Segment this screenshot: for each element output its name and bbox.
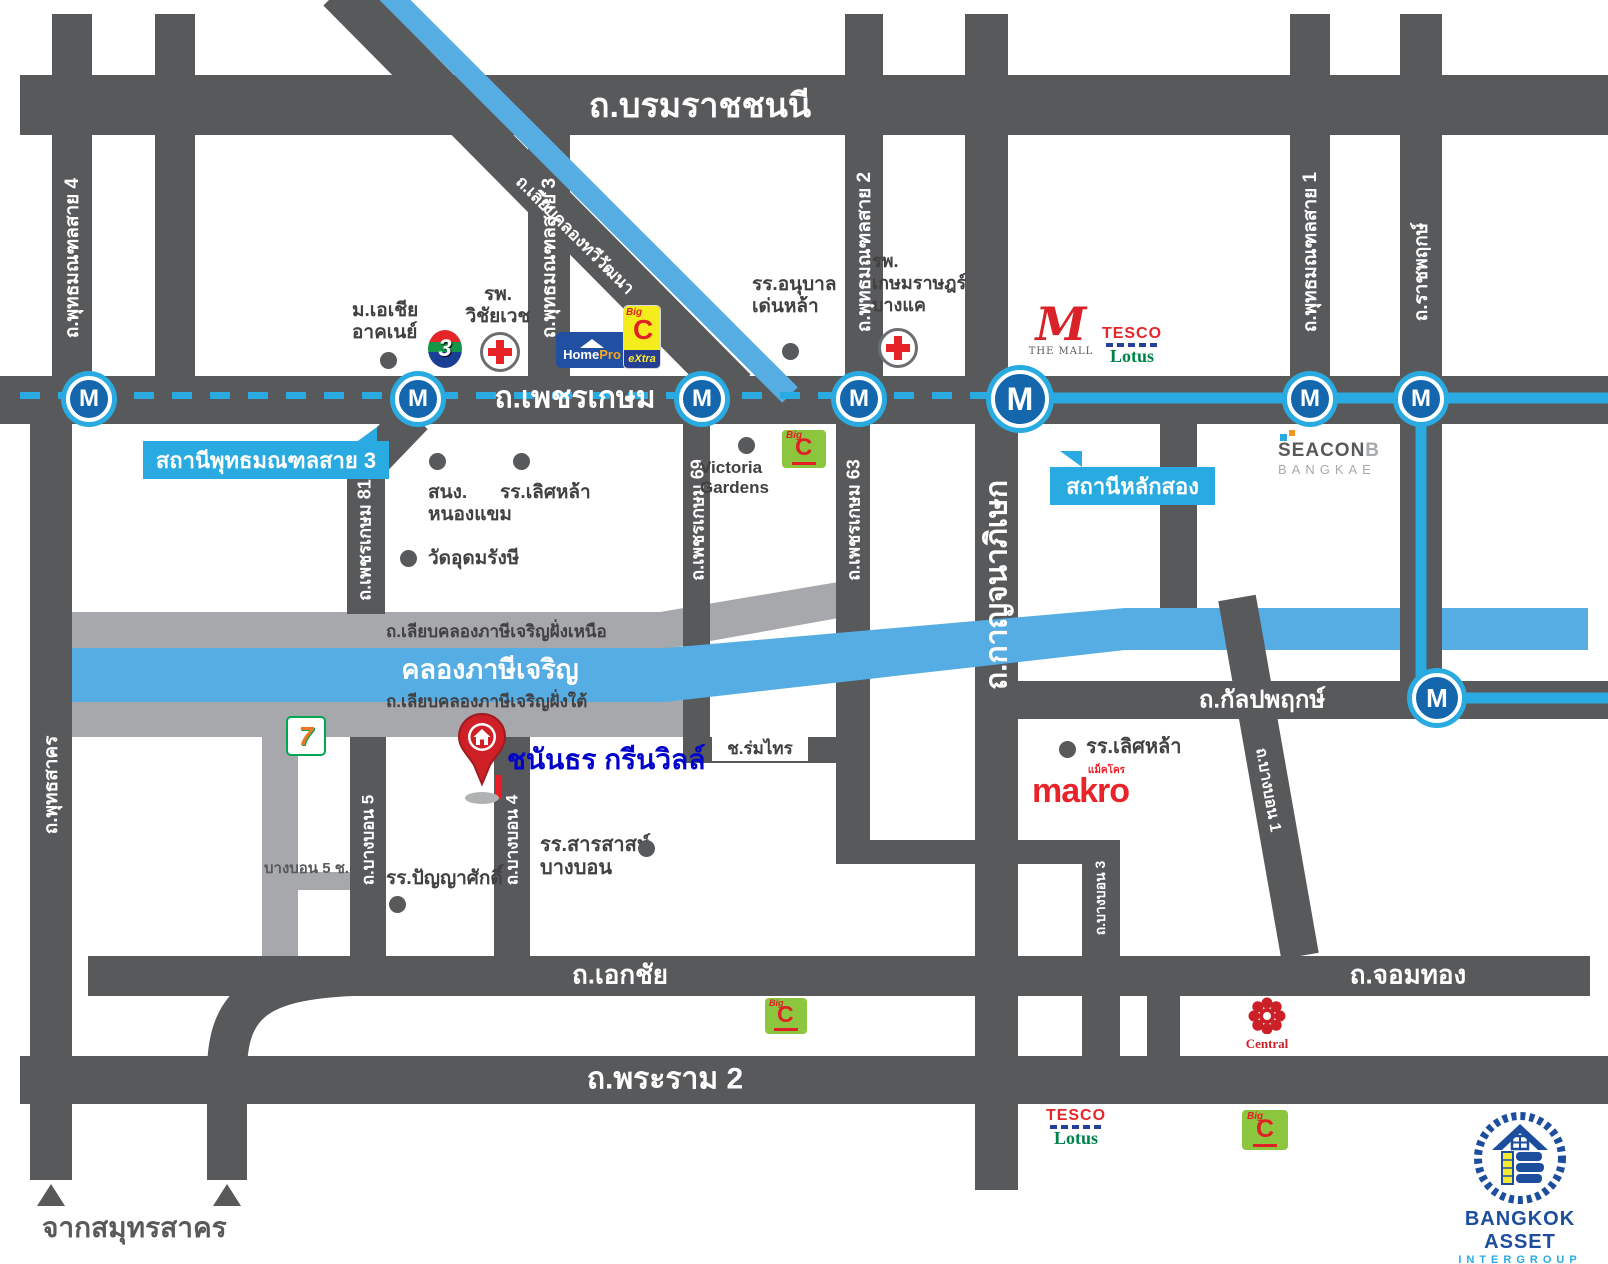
emblem-b-bar — [1516, 1152, 1542, 1161]
poi-dot — [513, 453, 530, 470]
poi-wat-udomrangsi: วัดอุดมรังษี — [428, 548, 519, 570]
bigc-c: C — [1256, 1115, 1274, 1144]
poi-line: บางบอน — [540, 857, 651, 880]
house-door — [480, 740, 484, 746]
bigc-tagline-bar — [1253, 1144, 1277, 1147]
label-borommaratchachonnani: ถ.บรมราชชนนี — [589, 78, 811, 132]
bigc-extra-logo: Big C eXtra — [624, 306, 660, 368]
bangkok-property-map: M M M M M M M M สถานีพุทธมณฑลสาย 3 สถานี… — [0, 0, 1608, 1264]
poi-lertlah-school-kanlapaphruek: รร.เลิศหล้า — [1086, 736, 1182, 758]
emblem-b-bar — [1516, 1174, 1542, 1183]
mrt-line-ratchaphruek-kanlapaphruek — [1421, 398, 1608, 698]
bigc-logo: Big C — [782, 430, 826, 468]
makro-logo: แม็คโคร makro — [1032, 766, 1129, 807]
bigc-c: C — [795, 434, 812, 462]
lotus-text: Lotus — [1100, 348, 1164, 365]
central-logo: Central — [1242, 994, 1292, 1049]
property-pin-icon — [455, 712, 515, 807]
property-name: ชนันธร กรีนวิลล์ — [507, 738, 705, 782]
label-liap-north: ถ.เลียบคลองภาษีเจริญฝั่งเหนือ — [386, 618, 607, 645]
label-romsai: ช.ร่มไทร — [712, 737, 808, 761]
bigc-c: C — [633, 314, 653, 346]
label-kanchanaphisek: ถ.กาญจนาภิเษก — [974, 480, 1021, 690]
bigc-tagline-bar — [792, 462, 816, 465]
poi-victoria-gardens: Victoria Gardens — [700, 458, 769, 498]
mrt-station-icon-2: M — [395, 376, 441, 422]
tesco-text: TESCO — [1044, 1108, 1108, 1124]
station-letter: M — [692, 385, 712, 413]
themall-m: M — [1028, 302, 1094, 346]
callout-sai3-pointer — [355, 427, 377, 443]
label-rama2: ถ.พระราม 2 — [587, 1056, 743, 1103]
label-bangbon5-soi5: บางบอน 5 ช.5 — [264, 856, 357, 880]
brand-name: BANGKOK ASSET — [1440, 1208, 1600, 1254]
label-phetkasem63: ถ.เพชรเกษม 63 — [839, 459, 868, 581]
hospital-cross-icon — [878, 328, 918, 368]
bangkok-asset-emblem-icon — [1460, 1108, 1580, 1208]
poi-line: อาคเนย์ — [352, 322, 418, 344]
homepro-pro: Pro — [599, 347, 621, 362]
cross-bar — [894, 336, 902, 360]
label-from-samut-sakhon: จากสมุทรสาคร — [42, 1206, 227, 1250]
poi-line: เกษมราษฎร์ — [872, 272, 966, 294]
mrt-station-icon-7: M — [1398, 376, 1444, 422]
label-phetkasem81: ถ.เพชรเกษม 81 — [350, 479, 379, 601]
poi-sarasas-bangbon-school: รร.สารสาสน์ บางบอน — [540, 834, 651, 880]
label-sai1: ถ.พุทธมณฑลสาย 1 — [1295, 172, 1325, 332]
mrt-station-icon-6: M — [1287, 376, 1333, 422]
label-sai4: ถ.พุทธมณฑลสาย 4 — [57, 178, 87, 338]
cross-bar — [496, 340, 504, 364]
mrt-station-icon-laksong: M — [991, 370, 1049, 428]
station-letter: M — [1426, 683, 1448, 714]
homepro-logo: HomePro — [556, 332, 628, 368]
lotus-text: Lotus — [1044, 1130, 1108, 1147]
poi-line: Gardens — [700, 478, 769, 498]
makro-text: makro — [1032, 775, 1129, 807]
seacon-square-orange — [1289, 430, 1295, 436]
bangkok-asset-brand: BANGKOK ASSET INTERGROUP — [1440, 1108, 1600, 1264]
channel3-digit: 3 — [438, 335, 451, 363]
poi-line: Victoria — [700, 458, 769, 478]
seven-eleven-logo-icon: 7 — [286, 716, 326, 756]
label-chomthong: ถ.จอมทอง — [1350, 955, 1466, 996]
callout-laksong-station: สถานีหลักสอง — [1050, 467, 1215, 505]
hospital-cross-icon — [480, 332, 520, 372]
seacon-bangkae: BANGKAE — [1278, 462, 1380, 477]
bigc-logo: Big C — [1242, 1110, 1288, 1150]
poi-dot — [380, 352, 397, 369]
label-phetkasem: ถ.เพชรเกษม — [495, 375, 656, 422]
poi-dot — [389, 896, 406, 913]
poi-lertlah-school-phetkasem: รร.เลิศหล้า — [500, 482, 591, 504]
poi-dot — [429, 453, 446, 470]
label-ekachai: ถ.เอกชัย — [572, 955, 668, 996]
arrow-up-icon — [213, 1184, 241, 1206]
pin-shadow — [465, 792, 499, 804]
label-bangbon5: ถ.บางบอน 5 — [355, 795, 382, 885]
station-letter: M — [79, 385, 99, 413]
seacon-text: SEACON — [1278, 440, 1365, 461]
poi-wichaiyawet-hospital: รพ. วิชัยเวช — [458, 284, 538, 328]
poi-dot — [400, 550, 417, 567]
poi-asia-university: ม.เอเชีย อาคเนย์ — [352, 300, 418, 344]
central-text: Central — [1242, 1039, 1292, 1049]
poi-line: เด่นหล้า — [752, 296, 836, 318]
station-letter: M — [1007, 381, 1034, 418]
mrt-station-icon-3: M — [679, 376, 725, 422]
label-liap-south: ถ.เลียบคลองภาษีเจริญฝั่งใต้ — [386, 688, 587, 715]
central-flower-icon — [1245, 994, 1289, 1034]
poi-line: รพ. — [872, 250, 966, 272]
seven-digit: 7 — [299, 721, 313, 752]
mrt-station-icon-4: M — [836, 376, 882, 422]
poi-line: หนองแขม — [428, 504, 512, 526]
tesco-lotus-logo: TESCO Lotus — [1100, 326, 1164, 365]
poi-line: วิชัยเวช — [458, 306, 538, 328]
themall-logo: M THE MALL — [1028, 302, 1094, 366]
label-phutthasakhon: ถ.พุทธสาคร — [36, 736, 66, 835]
homepro-home: Home — [563, 347, 599, 362]
channel3-logo-icon: 3 — [428, 330, 462, 368]
seacon-b: B — [1365, 440, 1380, 461]
poi-line: บางแค — [872, 294, 966, 316]
themall-text: THE MALL — [1028, 346, 1094, 357]
station-letter: M — [408, 385, 428, 413]
callout-sai3-station: สถานีพุทธมณฑลสาย 3 — [143, 441, 389, 479]
mrt-solid-layer — [0, 0, 1608, 1264]
poi-dot — [782, 343, 799, 360]
bigc-tagline-bar — [774, 1028, 798, 1031]
seacon-square-blue — [1280, 434, 1287, 441]
bigc-logo: Big C — [765, 998, 807, 1034]
poi-line: รพ. — [458, 284, 538, 306]
tesco-lotus-logo: TESCO Lotus — [1044, 1108, 1108, 1147]
poi-line: ม.เอเชีย — [352, 300, 418, 322]
label-khlong-phasi-charoen: คลองภาษีเจริญ — [401, 648, 578, 691]
station-letter: M — [1300, 385, 1320, 413]
station-letter: M — [1411, 385, 1431, 413]
mrt-station-icon-kanlapaphruek: M — [1412, 673, 1462, 723]
poi-kasemrad-hospital: รพ. เกษมราษฎร์ บางแค — [872, 250, 966, 316]
poi-dot — [638, 840, 655, 857]
station-letter: M — [849, 385, 869, 413]
bigc-c: C — [777, 1001, 794, 1028]
emblem-b-bar — [1516, 1163, 1544, 1172]
poi-anuban-denla-school: รร.อนุบาล เด่นหล้า — [752, 274, 836, 318]
poi-dot — [1059, 741, 1076, 758]
label-bangbon3: ถ.บางบอน 3 — [1090, 861, 1112, 936]
arrow-up-icon — [37, 1184, 65, 1206]
tesco-text: TESCO — [1100, 326, 1164, 342]
callout-sai3-label: สถานีพุทธมณฑลสาย 3 — [156, 443, 376, 478]
poi-dot — [738, 437, 755, 454]
mrt-station-icon-1: M — [66, 376, 112, 422]
bigc-extra-text: eXtra — [628, 353, 656, 365]
poi-panyasak-school: รร.ปัญญาศักดิ์ — [386, 868, 503, 890]
callout-laksong-pointer — [1060, 451, 1082, 467]
label-kanlapaphruek: ถ.กัลปพฤกษ์ — [1199, 680, 1325, 719]
label-ratchaphruek: ถ.ราชพฤกษ์ — [1406, 223, 1436, 322]
poi-line: รร.อนุบาล — [752, 274, 836, 296]
callout-laksong-label: สถานีหลักสอง — [1066, 469, 1199, 504]
brand-sub: INTERGROUP — [1440, 1254, 1600, 1264]
seacon-logo: SEACONB BANGKAE — [1278, 440, 1380, 477]
poi-line: รร.สารสาสน์ — [540, 834, 651, 857]
